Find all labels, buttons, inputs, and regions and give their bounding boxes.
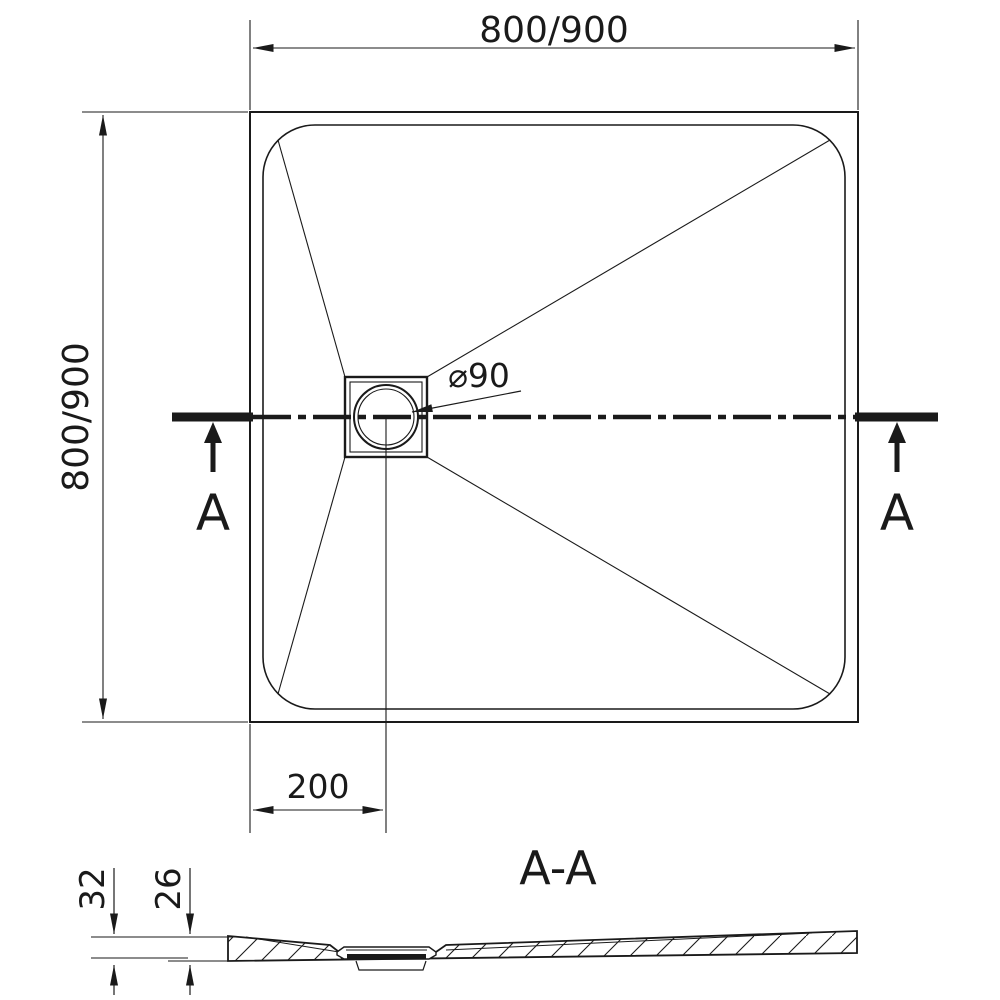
drain-cover-section <box>337 947 436 959</box>
drain-offset-label: 200 <box>287 767 350 806</box>
section-label-right: A <box>880 484 914 542</box>
overall-height-label: 32 <box>73 867 113 910</box>
drain-diameter-label: ⌀90 <box>448 356 510 395</box>
section-arrow-right <box>888 422 906 472</box>
section-extension-lines <box>91 937 240 961</box>
section-label-left: A <box>196 484 230 542</box>
drain-sump <box>356 961 426 970</box>
height-dim-label: 800/900 <box>56 342 97 492</box>
section-cut-line <box>172 417 938 472</box>
top-view <box>82 20 938 833</box>
shower-tray-technical-drawing: 800/900 800/900 ⌀90 200 A A <box>0 0 1000 1000</box>
section-title: A-A <box>519 841 597 895</box>
section-view <box>91 868 857 995</box>
width-dim-label: 800/900 <box>479 10 629 51</box>
section-arrow-left <box>204 422 222 472</box>
drawing-canvas: 800/900 800/900 ⌀90 200 A A <box>0 0 1000 1000</box>
base-thickness-label: 26 <box>149 867 189 910</box>
